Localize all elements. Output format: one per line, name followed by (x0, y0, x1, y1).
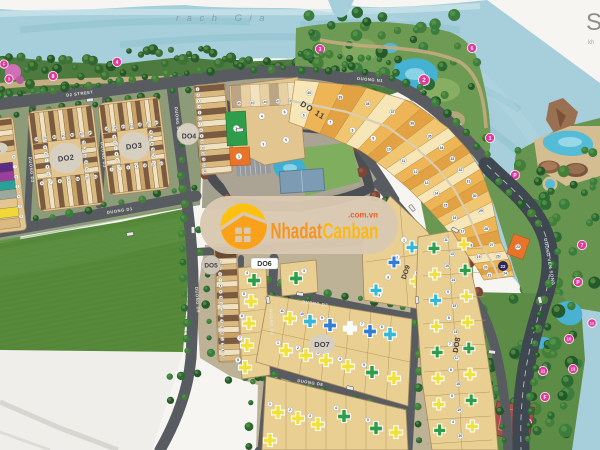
svg-text:18: 18 (456, 382, 460, 386)
svg-text:Canban: Canban (323, 219, 379, 244)
svg-text:24: 24 (503, 272, 507, 276)
svg-text:1: 1 (489, 136, 492, 142)
svg-text:45: 45 (237, 101, 241, 105)
svg-text:39: 39 (339, 95, 343, 99)
svg-text:5: 5 (367, 418, 369, 422)
svg-text:17: 17 (461, 230, 465, 234)
svg-text:8: 8 (448, 316, 450, 320)
svg-text:10: 10 (387, 148, 391, 152)
svg-text:3: 3 (319, 47, 322, 53)
svg-text:4: 4 (261, 114, 263, 118)
svg-text:34: 34 (440, 146, 444, 150)
svg-text:5: 5 (285, 138, 287, 142)
svg-text:11: 11 (444, 238, 448, 242)
svg-text:5: 5 (363, 363, 365, 367)
svg-text:8: 8 (237, 358, 239, 362)
svg-text:11: 11 (402, 159, 406, 163)
svg-text:DO6: DO6 (257, 261, 272, 268)
svg-text:19: 19 (477, 255, 481, 259)
svg-text:20: 20 (459, 434, 463, 438)
svg-text:35: 35 (428, 134, 432, 138)
svg-text:32: 32 (459, 168, 463, 172)
svg-text:19: 19 (457, 408, 461, 412)
svg-text:1: 1 (277, 341, 279, 345)
svg-text:44: 44 (250, 101, 254, 105)
svg-text:14: 14 (434, 192, 438, 196)
svg-text:DO4: DO4 (182, 134, 197, 141)
svg-text:42: 42 (276, 99, 280, 103)
svg-text:F: F (3, 62, 6, 67)
svg-text:36: 36 (410, 122, 414, 126)
svg-text:13: 13 (571, 367, 576, 372)
svg-text:7: 7 (239, 336, 241, 340)
svg-text:6: 6 (241, 314, 243, 318)
svg-text:8: 8 (52, 74, 55, 80)
svg-text:1: 1 (238, 155, 240, 159)
svg-text:6: 6 (303, 113, 305, 117)
svg-text:2: 2 (289, 408, 291, 412)
svg-text:26: 26 (496, 254, 500, 258)
svg-text:1: 1 (403, 238, 405, 242)
svg-text:29: 29 (479, 209, 483, 213)
svg-text:22: 22 (501, 264, 506, 269)
svg-text:9: 9 (447, 290, 449, 294)
svg-text:DO7: DO7 (314, 340, 329, 349)
svg-text:2: 2 (297, 346, 299, 350)
svg-text:3: 3 (262, 142, 264, 146)
svg-text:4: 4 (246, 271, 248, 275)
svg-text:12: 12 (590, 320, 595, 325)
svg-text:3: 3 (309, 414, 311, 418)
svg-text:Nhadat: Nhadat (271, 219, 323, 244)
svg-text:11: 11 (541, 369, 546, 374)
svg-text:4: 4 (339, 357, 341, 361)
svg-text:1: 1 (269, 402, 271, 406)
svg-text:16: 16 (453, 216, 457, 220)
svg-text:6: 6 (381, 325, 383, 329)
svg-text:16: 16 (454, 330, 458, 334)
svg-text:28: 28 (484, 227, 488, 231)
svg-text:21: 21 (488, 273, 492, 277)
svg-text:27: 27 (490, 243, 494, 247)
svg-text:7: 7 (361, 322, 363, 326)
svg-text:14: 14 (451, 278, 455, 282)
svg-text:kh: kh (588, 40, 594, 46)
svg-text:8: 8 (352, 128, 354, 132)
svg-text:6: 6 (471, 46, 474, 52)
svg-text:3: 3 (303, 269, 305, 273)
svg-text:23: 23 (516, 245, 520, 249)
svg-text:10: 10 (445, 264, 449, 268)
svg-text:30: 30 (473, 194, 477, 198)
svg-text:S: S (586, 9, 600, 36)
svg-text:rach Gia: rach Gia (176, 13, 272, 24)
svg-text:4: 4 (452, 420, 454, 424)
svg-text:4: 4 (116, 60, 119, 66)
svg-text:15: 15 (453, 304, 457, 308)
svg-text:12: 12 (414, 170, 418, 174)
svg-text:F: F (543, 395, 546, 401)
svg-text:37: 37 (391, 110, 395, 114)
svg-text:15: 15 (444, 204, 448, 208)
svg-text:13: 13 (450, 252, 454, 256)
svg-text:5: 5 (451, 394, 453, 398)
svg-text:43: 43 (263, 100, 267, 104)
svg-text:6: 6 (284, 110, 286, 114)
svg-text:10: 10 (567, 337, 572, 342)
svg-text:4: 4 (335, 406, 337, 410)
svg-text:17: 17 (455, 356, 459, 360)
svg-text:33: 33 (451, 157, 455, 161)
svg-text:7: 7 (329, 121, 331, 125)
svg-text:.com.vn: .com.vn (348, 211, 378, 220)
svg-text:DO5: DO5 (204, 263, 218, 270)
svg-text:40: 40 (307, 91, 311, 95)
svg-text:3: 3 (387, 275, 389, 279)
svg-text:7: 7 (581, 243, 584, 249)
svg-text:10: 10 (300, 312, 304, 316)
svg-text:31: 31 (467, 180, 471, 184)
svg-text:7: 7 (449, 342, 451, 346)
svg-text:20: 20 (484, 265, 488, 269)
svg-text:13: 13 (425, 181, 429, 185)
svg-text:5: 5 (243, 292, 245, 296)
svg-text:9: 9 (321, 316, 323, 320)
svg-text:38: 38 (366, 102, 370, 106)
svg-text:11: 11 (280, 309, 284, 313)
svg-text:9: 9 (372, 137, 374, 141)
svg-text:6: 6 (450, 368, 452, 372)
